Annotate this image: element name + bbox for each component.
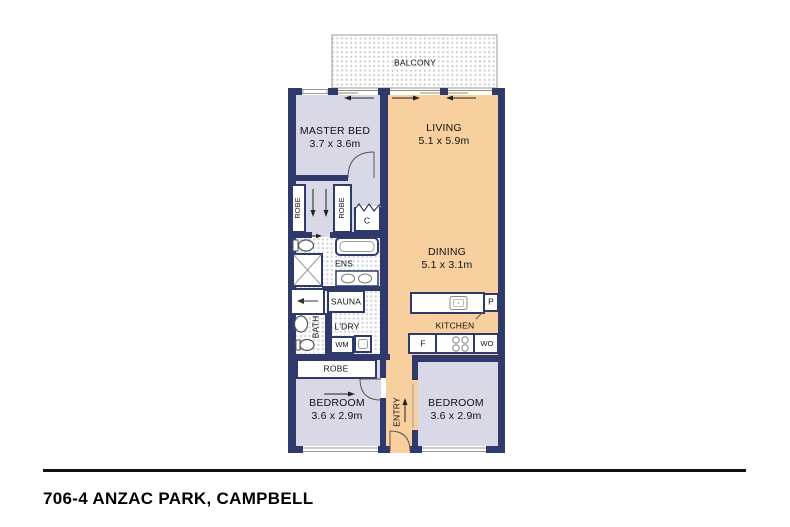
shower-icon bbox=[293, 254, 322, 286]
bedroom-left-name: BEDROOM bbox=[309, 397, 365, 410]
bedroom-left-dims: 3.6 x 2.9m bbox=[309, 410, 365, 423]
living-label: LIVING 5.1 x 5.9m bbox=[418, 122, 469, 148]
entry-label: ENTRY bbox=[393, 397, 402, 427]
bedroom-right-name: BEDROOM bbox=[428, 397, 484, 410]
sliding-door-tracks bbox=[338, 89, 492, 95]
balcony-label: BALCONY bbox=[394, 59, 436, 68]
wall-oven-label: WO bbox=[481, 340, 494, 348]
page-title: 706-4 ANZAC PARK, CAMPBELL bbox=[43, 489, 313, 509]
closet-label: C bbox=[364, 217, 370, 226]
vanity-icon bbox=[336, 271, 378, 286]
toilet-icon bbox=[293, 240, 298, 251]
dining-label: DINING 5.1 x 3.1m bbox=[421, 246, 472, 272]
laundry-label: L'DRY bbox=[334, 323, 359, 332]
laundry-tub-icon bbox=[355, 336, 371, 352]
robe-master-right-label: ROBE bbox=[338, 197, 346, 218]
fridge-label: F bbox=[420, 340, 425, 349]
basin-icon bbox=[295, 316, 308, 332]
bedroom-right-dims: 3.6 x 2.9m bbox=[428, 410, 484, 423]
master-bed-dims: 3.7 x 3.6m bbox=[300, 138, 370, 151]
master-bed-label: MASTER BED 3.7 x 3.6m bbox=[300, 125, 370, 151]
kitchen-bench bbox=[411, 293, 484, 313]
master-bed-name: MASTER BED bbox=[300, 125, 370, 138]
bathtub-icon bbox=[336, 238, 378, 255]
pantry-label: P bbox=[488, 298, 494, 307]
sink-icon bbox=[450, 297, 467, 310]
shower-icon bbox=[291, 289, 324, 314]
bedroom-right-label: BEDROOM 3.6 x 2.9m bbox=[428, 397, 484, 423]
dining-dims: 5.1 x 3.1m bbox=[421, 259, 472, 272]
bath-label: BATH bbox=[312, 316, 321, 339]
living-name: LIVING bbox=[418, 122, 469, 135]
robe-bedroom-label: ROBE bbox=[324, 365, 349, 374]
robe-master-left-label: ROBE bbox=[294, 197, 302, 218]
dining-name: DINING bbox=[421, 246, 472, 259]
kitchen-label: KITCHEN bbox=[436, 322, 475, 331]
living-dims: 5.1 x 5.9m bbox=[418, 135, 469, 148]
ensuite-label: ENS bbox=[335, 260, 353, 269]
floor-plan: BALCONY MASTER BED 3.7 x 3.6m LIVING 5.1… bbox=[0, 0, 790, 527]
washing-machine-label: WM bbox=[335, 341, 348, 349]
toilet-icon bbox=[299, 240, 314, 251]
sauna-label: SAUNA bbox=[331, 298, 361, 307]
divider-line bbox=[43, 469, 746, 472]
bedroom-left-label: BEDROOM 3.6 x 2.9m bbox=[309, 397, 365, 423]
toilet-icon bbox=[300, 340, 314, 351]
floor-plan-drawing bbox=[0, 0, 790, 527]
